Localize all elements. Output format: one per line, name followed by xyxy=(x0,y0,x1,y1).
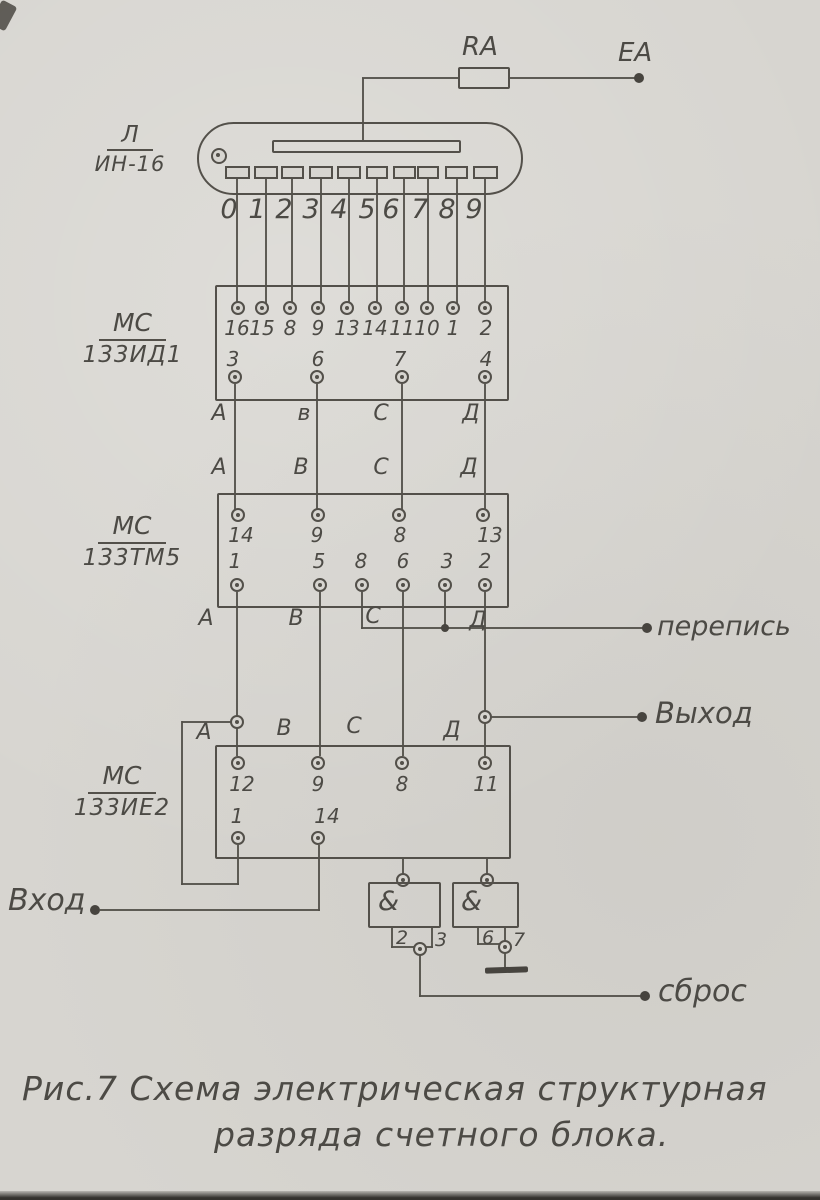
counter-pin xyxy=(395,756,409,770)
wire xyxy=(234,384,236,510)
cathode-8 xyxy=(445,166,468,179)
decoder-pin xyxy=(255,301,269,315)
gate-right-symbol: & xyxy=(461,888,482,915)
decoder-pin xyxy=(420,301,434,315)
bus-letter: Д xyxy=(469,610,486,632)
decoder-pin xyxy=(231,301,245,315)
decoder-pin xyxy=(228,370,242,384)
decoder-pin-num: 11 xyxy=(389,318,414,338)
decoder-pin-num: 7 xyxy=(394,349,407,369)
counter-pin xyxy=(311,831,325,845)
counter-pin xyxy=(311,756,325,770)
wire xyxy=(361,592,363,629)
decoder-designator: МС 133ИД1 xyxy=(80,310,185,367)
counter-pin xyxy=(231,756,245,770)
digit-label: 5 xyxy=(358,196,375,223)
wire-perepis xyxy=(361,627,647,629)
anode-terminal-label: EA xyxy=(618,40,652,66)
decoder-pin-num: 2 xyxy=(480,318,493,338)
latch-pin xyxy=(230,578,244,592)
latch-pin-num: 8 xyxy=(355,551,368,571)
junction-circle xyxy=(478,710,492,724)
gate-pin-num: 3 xyxy=(435,931,447,950)
wire xyxy=(484,384,486,510)
decoder-designator-bottom: 133ИД1 xyxy=(80,341,185,367)
wire-vhod xyxy=(318,845,320,911)
decoder-pin xyxy=(395,370,409,384)
junction-circle xyxy=(230,715,244,729)
counter-pin-num: 9 xyxy=(312,774,325,794)
digit-label: 2 xyxy=(275,196,292,223)
wire-vyhod xyxy=(487,716,639,718)
wire xyxy=(316,384,318,510)
tube-designator-top: Л xyxy=(107,124,152,151)
bus-letter: В xyxy=(293,457,308,479)
bus-letter: В xyxy=(288,608,303,630)
latch-pin xyxy=(478,578,492,592)
wire xyxy=(362,77,459,79)
bus-letter: Д xyxy=(462,403,479,425)
wire-sbros xyxy=(419,995,643,997)
counter-pin-num: 14 xyxy=(314,806,339,826)
tube-anode-bar xyxy=(272,140,461,153)
cathode-4 xyxy=(337,166,361,179)
decoder-pin xyxy=(478,370,492,384)
caption-line-2: разряда счетного блока. xyxy=(214,1118,669,1151)
cathode-3 xyxy=(309,166,333,179)
decoder-pin-num: 6 xyxy=(312,349,325,369)
latch-pin-num: 5 xyxy=(313,551,326,571)
latch-pin xyxy=(311,508,325,522)
bus-letter: С xyxy=(373,457,388,479)
gate-left-symbol: & xyxy=(378,888,399,915)
wire xyxy=(504,952,506,967)
latch-pin-num: 9 xyxy=(311,525,324,545)
latch-pin-num: 14 xyxy=(228,525,253,545)
bus-letter: В xyxy=(276,718,291,740)
cathode-9 xyxy=(473,166,498,179)
bus-letter: А xyxy=(211,457,226,479)
gate-pin xyxy=(413,942,427,956)
nixie-tube-body xyxy=(197,122,523,195)
resistor-body xyxy=(458,67,510,89)
digit-label: 8 xyxy=(438,196,455,223)
resistor-label: RA xyxy=(462,34,498,60)
bus-letter: А xyxy=(211,403,226,425)
digit-label: 0 xyxy=(220,196,237,223)
decoder-pin-num: 1 xyxy=(447,318,460,338)
decoder-pin xyxy=(310,370,324,384)
digit-label: 3 xyxy=(302,196,319,223)
decoder-pin-num: 4 xyxy=(480,349,493,369)
wire xyxy=(236,592,238,756)
wire-feedback xyxy=(181,883,239,885)
tube-designator: Л ИН-16 xyxy=(88,124,172,175)
vyhod-label: Выход xyxy=(655,699,753,728)
digit-label: 7 xyxy=(411,196,428,223)
counter-designator: МС 133ИЕ2 xyxy=(66,763,178,820)
decoder-designator-top: МС xyxy=(99,310,166,341)
junction-dot xyxy=(441,624,449,632)
caption-line-1: Рис.7 Схема электрическая структурная xyxy=(22,1072,768,1105)
wire xyxy=(391,928,393,948)
wire xyxy=(401,384,403,510)
decoder-pin-num: 15 xyxy=(249,318,274,338)
counter-designator-top: МС xyxy=(88,763,155,794)
latch-designator-bottom: 133ТМ5 xyxy=(72,544,192,570)
latch-designator: МС 133ТМ5 xyxy=(72,513,192,570)
ground-symbol xyxy=(485,966,528,973)
vhod-label: Вход xyxy=(8,886,85,916)
decoder-pin xyxy=(311,301,325,315)
counter-pin-num: 11 xyxy=(473,774,498,794)
bus-letter: С xyxy=(365,606,380,628)
counter-pin-num: 1 xyxy=(231,806,244,826)
counter-pin-num: 12 xyxy=(229,774,254,794)
wire xyxy=(319,592,321,756)
latch-pin xyxy=(396,578,410,592)
gate-pin-num: 2 xyxy=(396,929,408,948)
latch-pin xyxy=(392,508,406,522)
latch-pin xyxy=(476,508,490,522)
cathode-7 xyxy=(417,166,439,179)
latch-pin-num: 2 xyxy=(479,551,492,571)
perepis-label: перепись xyxy=(657,613,791,640)
wire-vhod xyxy=(99,909,320,911)
paper-artifact xyxy=(0,0,17,31)
sbros-label: сброс xyxy=(658,977,747,1007)
tube-designator-bottom: ИН-16 xyxy=(88,151,172,175)
cathode-1 xyxy=(254,166,278,179)
bus-letter: Д xyxy=(460,457,477,479)
latch-pin-num: 8 xyxy=(394,525,407,545)
decoder-pin-num: 9 xyxy=(312,318,325,338)
decoder-pin xyxy=(478,301,492,315)
paper-artifact xyxy=(0,1191,820,1200)
sbros-terminal-dot xyxy=(640,991,650,1001)
counter-pin-num: 8 xyxy=(396,774,409,794)
cathode-6 xyxy=(393,166,416,179)
decoder-pin-num: 16 xyxy=(224,318,249,338)
decoder-pin xyxy=(340,301,354,315)
cathode-2 xyxy=(281,166,304,179)
decoder-pin xyxy=(446,301,460,315)
bus-letter: С xyxy=(346,716,361,738)
counter-designator-bottom: 133ИЕ2 xyxy=(66,794,178,820)
decoder-pin-num: 10 xyxy=(414,318,439,338)
wire-feedback xyxy=(181,721,183,885)
latch-designator-top: МС xyxy=(98,513,165,544)
latch-pin xyxy=(313,578,327,592)
latch-pin xyxy=(438,578,452,592)
bus-letter: А xyxy=(198,608,213,630)
digit-label: 6 xyxy=(382,196,399,223)
wire xyxy=(431,928,433,948)
counter-pin xyxy=(478,756,492,770)
digit-label: 4 xyxy=(330,196,347,223)
tube-marker xyxy=(211,148,227,164)
vyhod-terminal-dot xyxy=(637,712,647,722)
digit-label: 9 xyxy=(465,196,482,223)
latch-pin-num: 3 xyxy=(441,551,454,571)
cathode-0 xyxy=(225,166,250,179)
wire xyxy=(402,592,404,756)
decoder-pin-num: 14 xyxy=(362,318,387,338)
gate-pin-num: 7 xyxy=(513,931,525,950)
decoder-pin xyxy=(283,301,297,315)
anode-terminal-dot xyxy=(634,73,644,83)
latch-pin xyxy=(231,508,245,522)
latch-pin-num: 13 xyxy=(477,525,502,545)
perepis-terminal-dot xyxy=(642,623,652,633)
latch-pin-num: 6 xyxy=(397,551,410,571)
bus-letter: А xyxy=(196,722,211,744)
decoder-pin-num: 8 xyxy=(284,318,297,338)
gate-pin-num: 6 xyxy=(482,929,494,948)
bus-letter: Д xyxy=(443,720,460,742)
counter-pin xyxy=(231,831,245,845)
decoder-pin-num: 13 xyxy=(334,318,359,338)
decoder-pin xyxy=(395,301,409,315)
decoder-pin xyxy=(368,301,382,315)
wire xyxy=(509,77,637,79)
wire-sbros xyxy=(419,955,421,997)
bus-letter: С xyxy=(373,403,388,425)
schematic-page: RA EA Л ИН-16 0 1 2 3 4 5 6 7 8 9 МС 133… xyxy=(0,0,820,1200)
cathode-5 xyxy=(366,166,388,179)
bus-letter: в xyxy=(298,403,311,425)
digit-label: 1 xyxy=(248,196,265,223)
decoder-pin-num: 3 xyxy=(227,349,240,369)
counter-body xyxy=(215,745,511,859)
latch-pin xyxy=(355,578,369,592)
latch-pin-num: 1 xyxy=(229,551,242,571)
